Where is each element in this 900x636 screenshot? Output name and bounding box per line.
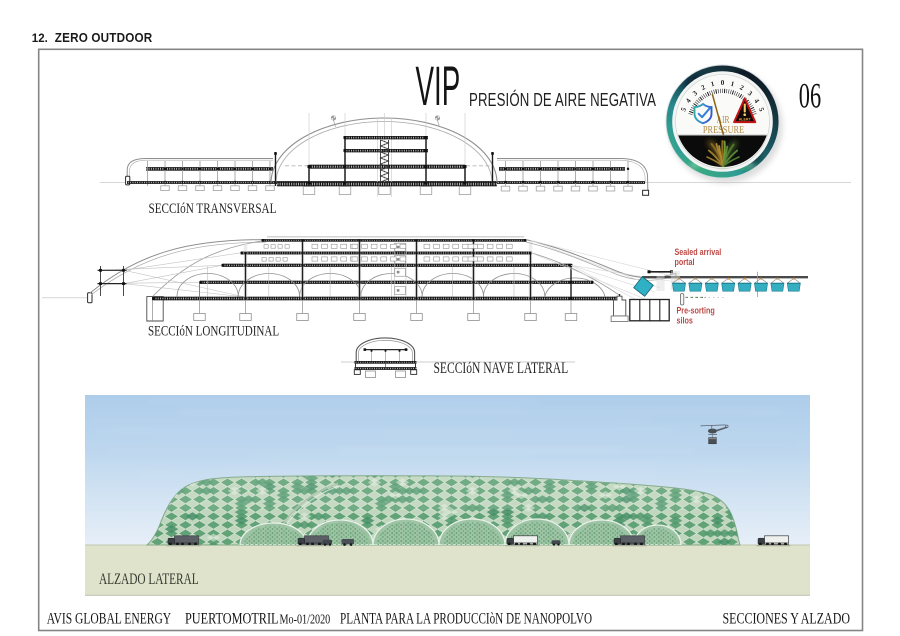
svg-text:06: 06 [799,76,821,116]
svg-text:silos: silos [677,316,694,326]
svg-text:ALERT: ALERT [739,118,752,122]
svg-text:SECCIóN LONGITUDINAL: SECCIóN LONGITUDINAL [148,322,279,339]
svg-text:AVIS GLOBAL ENERGY: AVIS GLOBAL ENERGY [47,610,172,627]
svg-text:Pre-sorting: Pre-sorting [677,306,715,316]
svg-text:PUERTOMOTRIL: PUERTOMOTRIL [185,610,278,627]
svg-text:portal: portal [675,257,695,267]
svg-text:Mo-01/2020: Mo-01/2020 [280,611,331,627]
svg-text:VIP: VIP [416,56,461,118]
svg-text:SECCIóN TRANSVERSAL: SECCIóN TRANSVERSAL [149,199,277,216]
svg-text:PLANTA PARA LA PRODUCCIòN DE N: PLANTA PARA LA PRODUCCIòN DE NANOPOLVO [340,610,592,627]
svg-text:SECCIONES Y ALZADO: SECCIONES Y ALZADO [722,610,850,627]
svg-text:ZERO OUTDOOR: ZERO OUTDOOR [55,30,153,45]
svg-text:SECCIóN NAVE LATERAL: SECCIóN NAVE LATERAL [434,359,569,377]
svg-text:Sealed arrival: Sealed arrival [675,247,722,257]
svg-text:ALZADO LATERAL: ALZADO LATERAL [99,570,199,587]
svg-text:12.: 12. [32,33,48,45]
svg-text:0: 0 [721,79,725,87]
svg-text:PRESIÓN DE AIRE NEGATIVA: PRESIÓN DE AIRE NEGATIVA [469,89,656,111]
